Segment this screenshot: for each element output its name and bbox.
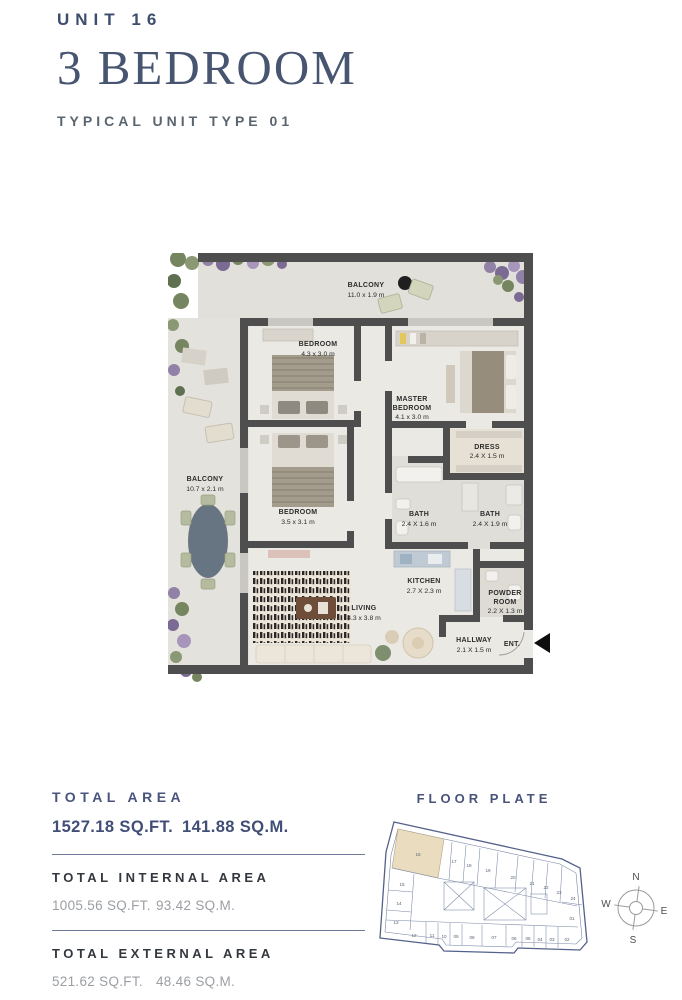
fp-unit-12: 12 <box>411 933 417 938</box>
external-area-title: TOTAL EXTERNAL AREA <box>52 946 365 961</box>
fp-unit-10: 10 <box>441 934 447 939</box>
fp-unit-22: 22 <box>543 885 549 890</box>
external-area-values: 521.62 SQ.FT. 48.46 SQ.M. <box>52 974 365 989</box>
fp-unit-07: 07 <box>491 935 497 940</box>
internal-area-sqm: 93.42 SQ.M. <box>156 898 235 913</box>
separator <box>52 854 365 855</box>
separator <box>52 930 365 931</box>
svg-text:2.2 X 1.3 m: 2.2 X 1.3 m <box>488 608 523 615</box>
page-title: 3 BEDROOM <box>57 43 357 92</box>
svg-text:10.7 x 2.1 m: 10.7 x 2.1 m <box>186 486 224 493</box>
area-summary: TOTAL AREA 1527.18 SQ.FT. 141.88 SQ.M. T… <box>52 789 365 989</box>
external-area-sqft: 521.62 SQ.FT. <box>52 974 156 989</box>
internal-area-sqft: 1005.56 SQ.FT. <box>52 898 156 913</box>
fp-unit-08: 08 <box>469 935 475 940</box>
svg-text:MASTER: MASTER <box>396 396 427 403</box>
svg-text:DRESS: DRESS <box>474 444 500 451</box>
page-subtitle: TYPICAL UNIT TYPE 01 <box>57 113 357 129</box>
fp-unit-15: 15 <box>399 882 405 887</box>
fp-unit-14: 14 <box>396 901 402 906</box>
total-area-sqft: 1527.18 SQ.FT. <box>52 818 182 837</box>
total-area-values: 1527.18 SQ.FT. 141.88 SQ.M. <box>52 818 365 837</box>
svg-text:2.1 X 1.5 m: 2.1 X 1.5 m <box>457 647 492 654</box>
fp-unit-23: 23 <box>556 890 562 895</box>
fp-unit-19: 19 <box>485 868 491 873</box>
compass-n-label: N <box>632 872 639 883</box>
svg-text:KITCHEN: KITCHEN <box>407 578 440 585</box>
total-area-sqm: 141.88 SQ.M. <box>182 818 289 837</box>
svg-text:POWDER: POWDER <box>488 590 521 597</box>
header: UNIT 16 3 BEDROOM TYPICAL UNIT TYPE 01 <box>57 10 357 129</box>
internal-area-title: TOTAL INTERNAL AREA <box>52 870 365 885</box>
external-area-sqm: 48.46 SQ.M. <box>156 974 235 989</box>
fp-unit-17: 17 <box>451 859 457 864</box>
svg-text:4.3 x 3.0 m: 4.3 x 3.0 m <box>301 351 335 358</box>
svg-text:2.4 X 1.6 m: 2.4 X 1.6 m <box>402 521 437 528</box>
svg-text:3.5 x 3.1 m: 3.5 x 3.1 m <box>281 519 315 526</box>
svg-text:4.1 x 3.0 m: 4.1 x 3.0 m <box>395 414 429 421</box>
svg-text:2.4 X 1.5 m: 2.4 X 1.5 m <box>470 453 505 460</box>
unit-number: UNIT 16 <box>57 10 357 30</box>
floor-plan: BALCONY 11.0 x 1.9 m BEDROOM 4.3 x 3.0 m… <box>168 253 563 683</box>
entrance-arrow-icon <box>534 633 550 653</box>
compass-icon: N E S W <box>596 864 676 948</box>
total-area-title: TOTAL AREA <box>52 789 365 805</box>
svg-text:2.7 X 2.3 m: 2.7 X 2.3 m <box>407 588 442 595</box>
svg-text:BEDROOM: BEDROOM <box>299 341 338 348</box>
fp-unit-13: 13 <box>393 920 399 925</box>
svg-text:11.0 x 1.9 m: 11.0 x 1.9 m <box>348 292 385 299</box>
fp-unit-02: 02 <box>564 937 570 942</box>
svg-text:BEDROOM: BEDROOM <box>393 405 432 412</box>
svg-text:BEDROOM: BEDROOM <box>279 509 318 516</box>
bedroom2-furniture <box>260 433 347 507</box>
fp-unit-01: 01 <box>569 916 575 921</box>
entrance-label: ENT. <box>504 641 520 648</box>
fp-unit-05: 05 <box>525 936 531 941</box>
svg-text:BATH: BATH <box>409 511 429 518</box>
compass-w-label: W <box>601 899 611 910</box>
svg-text:BALCONY: BALCONY <box>187 476 224 483</box>
fp-unit-20: 20 <box>510 875 516 880</box>
room-label-master-bedroom: MASTER BEDROOM 4.1 x 3.0 m <box>393 396 432 421</box>
floor-plate-diagram: 16 17 18 19 20 21 22 23 24 15 14 13 12 1… <box>366 810 602 968</box>
fp-unit-21: 21 <box>529 881 535 886</box>
svg-text:4.3 x 3.8 m: 4.3 x 3.8 m <box>347 615 381 622</box>
fp-unit-06: 06 <box>511 936 517 941</box>
fp-unit-11: 11 <box>430 933 435 938</box>
fp-unit-16: 16 <box>415 852 421 857</box>
fp-unit-04: 04 <box>537 937 543 942</box>
fp-unit-18: 18 <box>466 863 472 868</box>
compass-e-label: E <box>661 906 668 917</box>
internal-area-values: 1005.56 SQ.FT. 93.42 SQ.M. <box>52 898 365 913</box>
brochure-page: UNIT 16 3 BEDROOM TYPICAL UNIT TYPE 01 <box>0 0 682 1000</box>
fp-unit-24: 24 <box>570 896 576 901</box>
svg-text:ROOM: ROOM <box>494 599 517 606</box>
svg-text:BATH: BATH <box>480 511 500 518</box>
fp-unit-09: 09 <box>453 934 459 939</box>
svg-text:LIVING: LIVING <box>351 605 376 612</box>
fp-unit-03: 03 <box>549 937 555 942</box>
svg-text:2.4 X 1.9 m: 2.4 X 1.9 m <box>473 521 508 528</box>
floor-plate-title: FLOOR PLATE <box>368 791 600 806</box>
svg-text:BALCONY: BALCONY <box>348 282 385 289</box>
svg-text:HALLWAY: HALLWAY <box>456 637 492 644</box>
compass-s-label: S <box>630 935 637 946</box>
